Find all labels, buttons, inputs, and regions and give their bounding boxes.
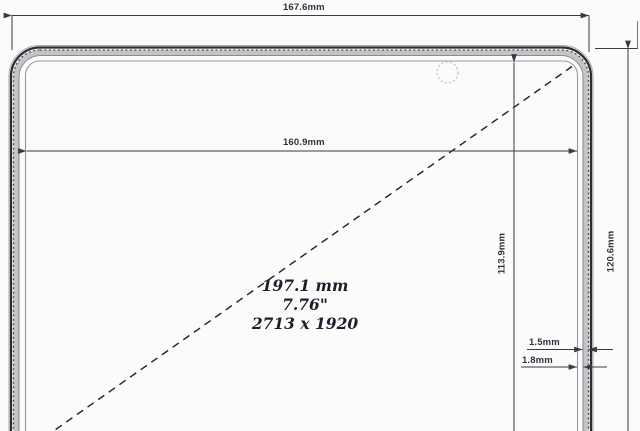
- bezel-outer-label: 1.5mm: [529, 337, 560, 348]
- device-drawing-svg: [0, 0, 640, 431]
- resolution-label: 2713 x 1920: [230, 315, 380, 334]
- diagonal-inch-label: 7.76": [230, 296, 380, 315]
- display-height-label: 113.9mm: [497, 229, 508, 279]
- overall-height-label: 120.6mm: [606, 227, 617, 277]
- display-info-block: 197.1 mm 7.76" 2713 x 1920: [230, 277, 380, 334]
- dimension-overall-height: [595, 21, 638, 431]
- display-width-label: 160.9mm: [283, 137, 325, 148]
- overall-width-label: 167.6mm: [283, 2, 325, 13]
- camera-circle-icon: [437, 62, 458, 83]
- bezel-inner-label: 1.8mm: [522, 355, 553, 366]
- dimension-drawing-canvas: 167.6mm 160.9mm 113.9mm 120.6mm 1.5mm 1.…: [0, 0, 640, 431]
- display-outline: [26, 61, 578, 431]
- diagonal-dimension-line: [45, 67, 572, 431]
- diagonal-mm-label: 197.1 mm: [230, 277, 380, 296]
